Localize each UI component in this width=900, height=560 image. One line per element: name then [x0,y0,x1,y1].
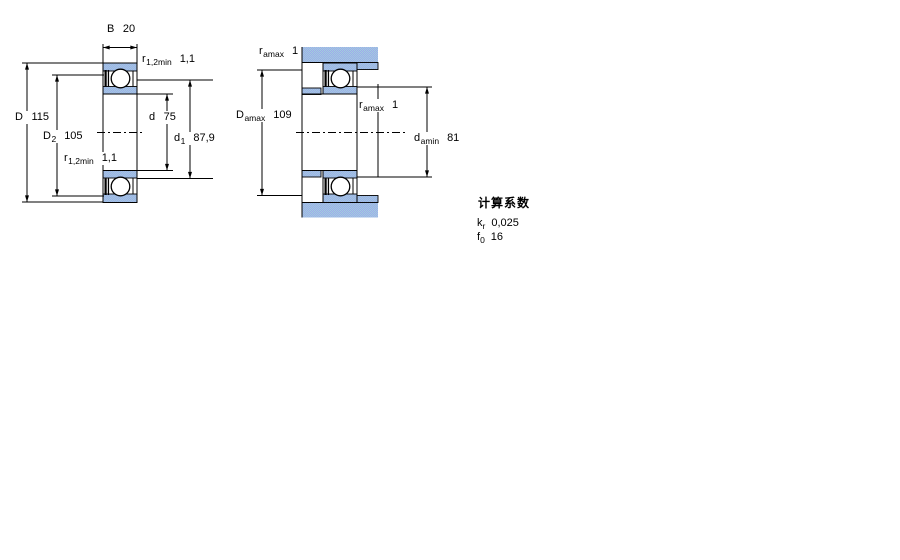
dim-Damax [257,70,302,196]
calculation-factors-title: 计算系数 [478,194,530,211]
right-bearing-section-top [323,63,357,94]
dim-B [103,44,137,63]
dim-label-B: B20 [106,23,136,36]
seal [325,179,327,196]
shaft-shoulder-bottom [302,171,321,178]
left-bearing-section-bottom [103,171,137,203]
seal [105,179,107,196]
seal [108,179,109,196]
ball [111,177,130,196]
ball [111,69,130,88]
seal [105,70,107,87]
factor-kr: kr0,025 [477,217,519,229]
housing-bottom [302,203,378,218]
dim-label-damin: damin81 [413,132,460,145]
housing-top [302,47,378,63]
bearing-drawing [0,0,900,560]
ball [331,69,350,88]
dim-label-ramax-top: ramax1 [258,45,299,58]
dim-label-D2: D2105 [42,130,84,143]
left-bearing-section-top [103,63,137,94]
dim-label-D: D115 [14,111,50,124]
seal [328,70,329,87]
seal [108,70,109,87]
dim-d1 [137,80,213,179]
dim-d [137,94,173,171]
left-view [22,44,213,203]
right-bearing-section-bottom [323,171,357,203]
dim-label-ramax-mid: ramax1 [358,99,399,112]
housing-shoulder-bottom [357,196,378,203]
technical-drawing-page: B20 r1,2min1,1 D115 D2105 r1,2min1,1 d75… [0,0,900,560]
seal [328,179,329,196]
housing-shoulder-top [357,63,378,70]
dim-label-r12min-bottom: r1,2min1,1 [63,152,118,165]
dim-label-Damax: Damax109 [235,109,293,122]
right-view [257,47,432,218]
factor-f0: f016 [477,231,503,243]
ball [331,177,350,196]
dim-label-d: d75 [148,111,177,124]
dim-label-d1: d187,9 [173,132,216,145]
seal [325,70,327,87]
dim-label-r12min-top: r1,2min1,1 [141,53,196,66]
